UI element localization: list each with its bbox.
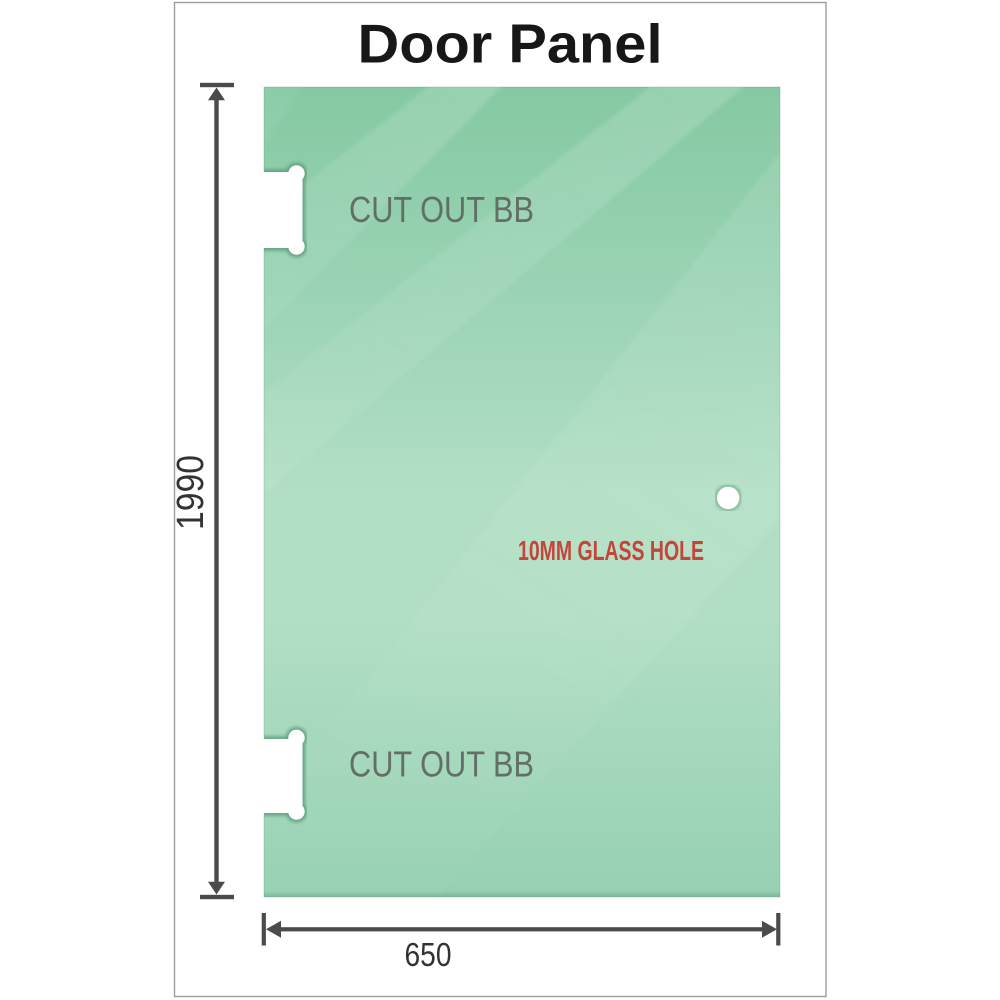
- svg-text:10MM GLASS HOLE: 10MM GLASS HOLE: [518, 534, 704, 566]
- svg-text:1990: 1990: [170, 455, 212, 530]
- svg-text:Door Panel: Door Panel: [358, 13, 663, 75]
- svg-text:650: 650: [405, 936, 452, 973]
- svg-text:CUT OUT BB: CUT OUT BB: [349, 743, 534, 784]
- svg-text:CUT OUT BB: CUT OUT BB: [349, 189, 534, 230]
